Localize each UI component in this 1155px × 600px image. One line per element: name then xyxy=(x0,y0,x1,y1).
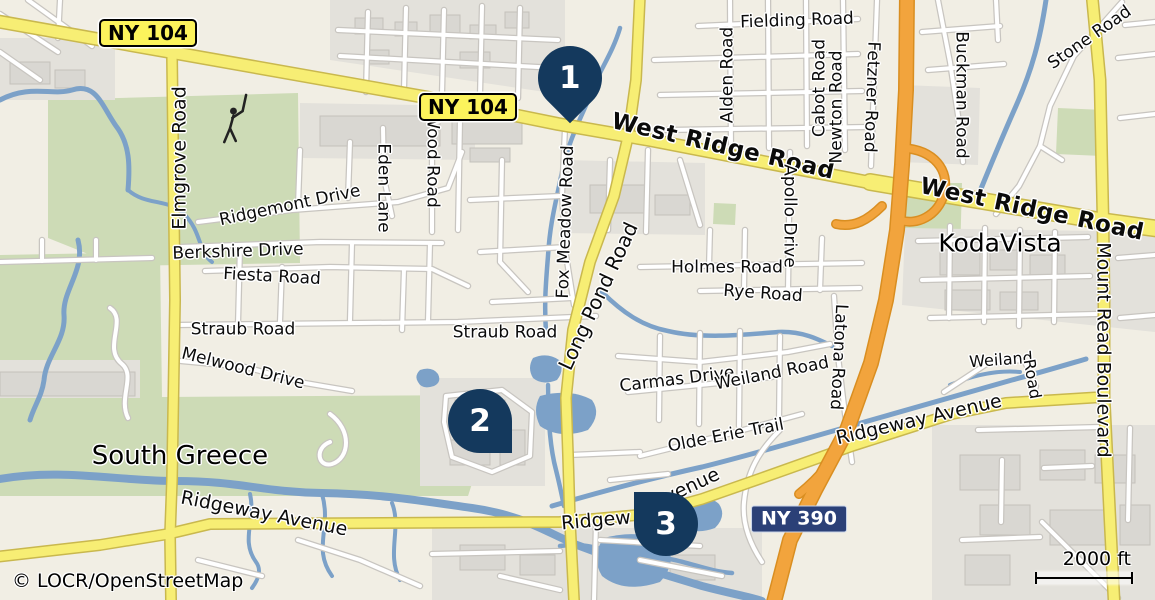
map-canvas[interactable]: West Ridge RoadWest Ridge RoadStone Road… xyxy=(0,0,1155,600)
scale-bar: 2000 ft xyxy=(1035,548,1133,584)
map-pin-number: 2 xyxy=(469,403,491,439)
map-pin-2[interactable]: 2 xyxy=(448,389,512,453)
scale-bar-rule xyxy=(1035,572,1133,584)
attribution: © LOCR/OpenStreetMap xyxy=(12,570,243,592)
scale-bar-label: 2000 ft xyxy=(1035,548,1133,570)
map-pin-number: 3 xyxy=(655,506,677,542)
map-pin-3[interactable]: 3 xyxy=(634,492,698,556)
map-pin-number: 1 xyxy=(559,60,581,96)
